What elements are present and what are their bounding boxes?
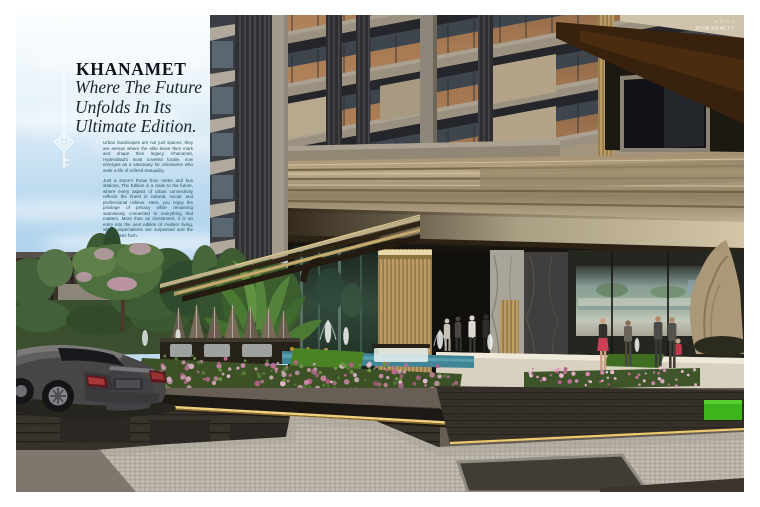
svg-text:RIYA REALTY: RIYA REALTY — [695, 26, 735, 32]
svg-text:A N V I: A N V I — [715, 19, 733, 24]
